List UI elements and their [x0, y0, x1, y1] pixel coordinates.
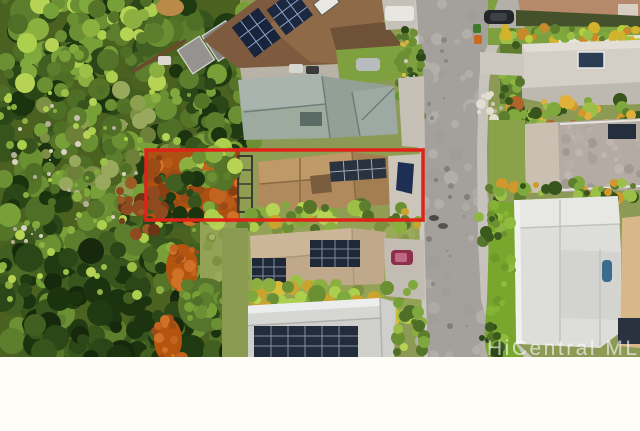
svg-text:HiCentral MLS: HiCentral MLS: [487, 337, 640, 360]
